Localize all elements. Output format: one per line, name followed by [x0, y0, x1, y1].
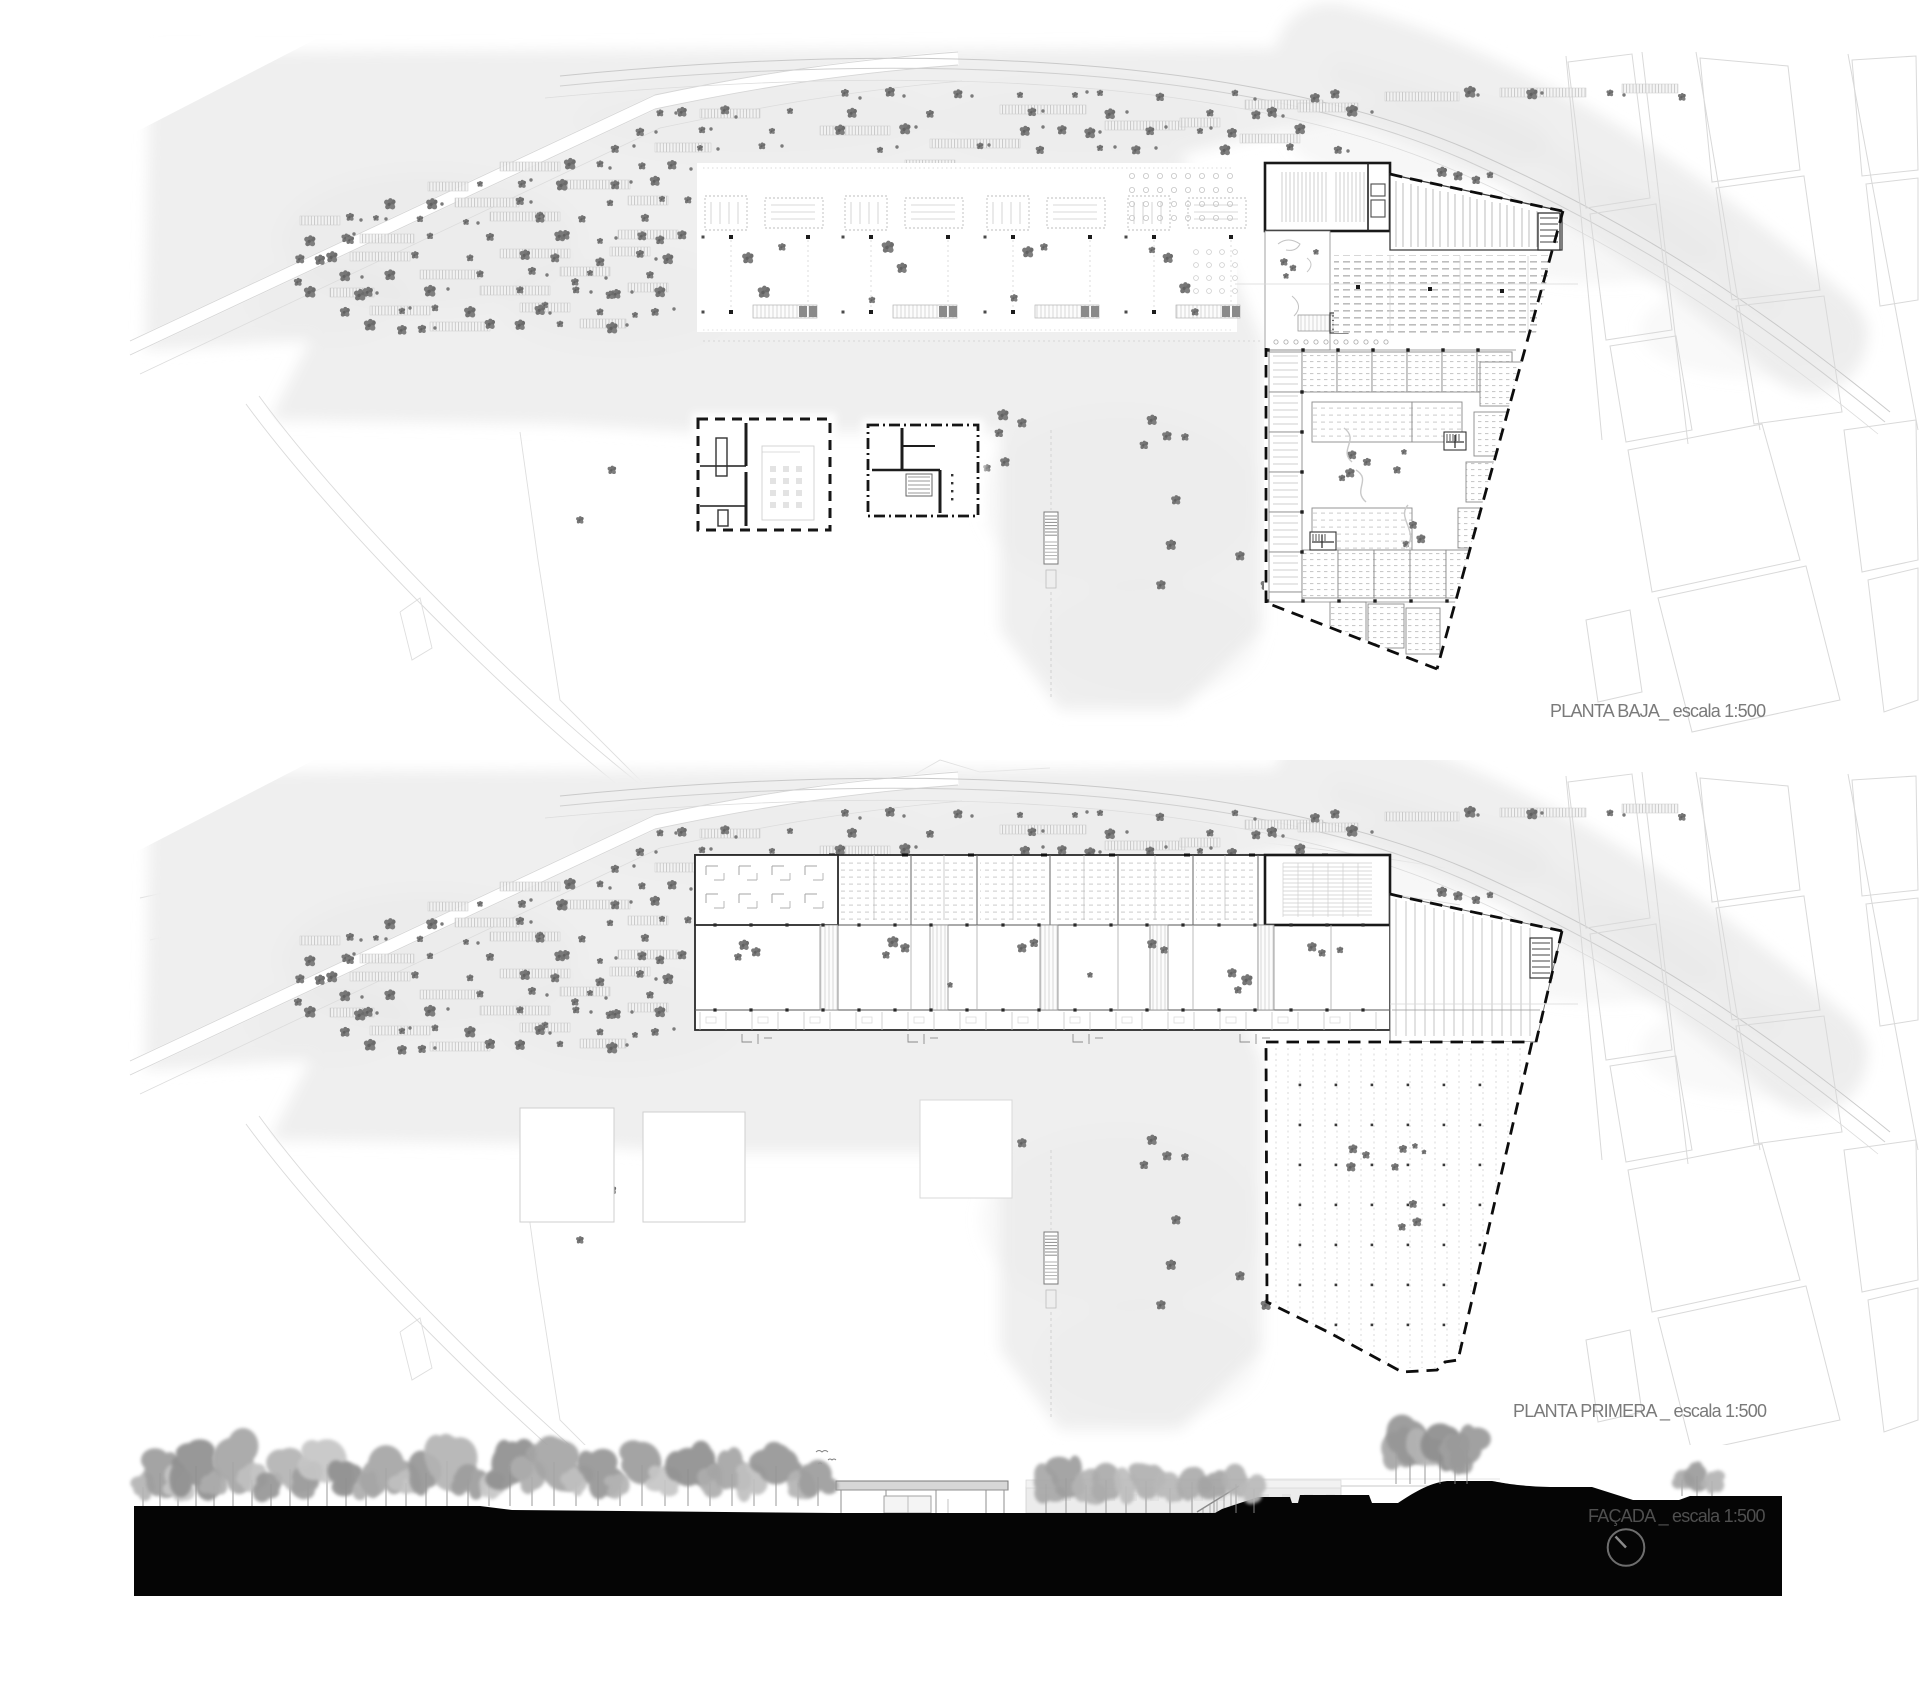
svg-text:PLANTA BAJA_ escala 1:500: PLANTA BAJA_ escala 1:500 [1550, 701, 1766, 722]
svg-text:FAÇADA _ escala 1:500: FAÇADA _ escala 1:500 [1588, 1506, 1766, 1527]
svg-text:PLANTA PRIMERA _ escala 1:500: PLANTA PRIMERA _ escala 1:500 [1513, 1401, 1767, 1422]
